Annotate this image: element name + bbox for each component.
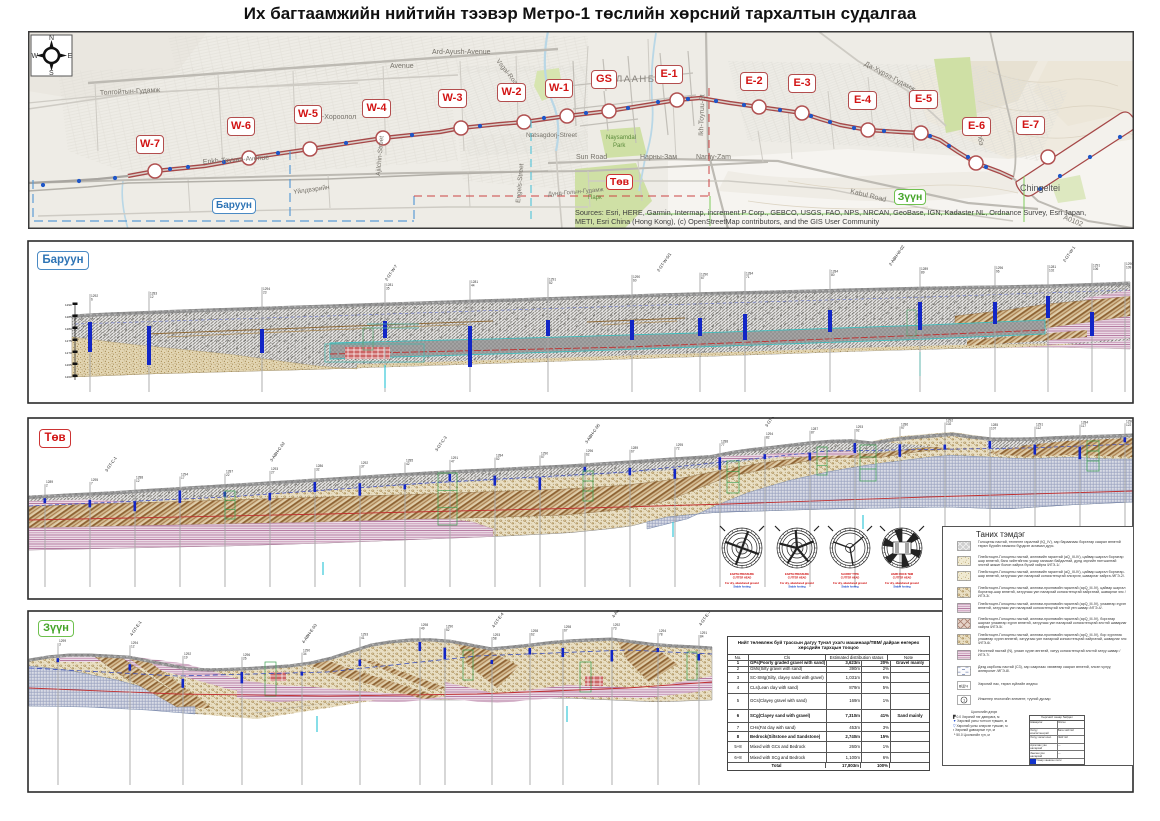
svg-text:122: 122 — [1126, 423, 1132, 427]
svg-text:Ikh-Toyruu-St: Ikh-Toyruu-St — [698, 94, 706, 136]
svg-text:35: 35 — [386, 287, 390, 291]
svg-text:E: E — [68, 53, 73, 60]
svg-text:Stable footing: Stable footing — [893, 585, 911, 589]
svg-text:96: 96 — [996, 269, 1000, 273]
svg-text:58: 58 — [493, 637, 497, 641]
svg-text:112: 112 — [1036, 426, 1041, 430]
svg-text:52: 52 — [549, 281, 553, 285]
svg-text:26: 26 — [243, 656, 247, 660]
svg-text:87: 87 — [811, 430, 815, 434]
svg-text:2: 2 — [46, 484, 48, 488]
svg-text:41: 41 — [361, 636, 365, 640]
svg-text:1280: 1280 — [65, 327, 72, 331]
svg-text:Парк: Парк — [588, 195, 602, 201]
svg-text:82: 82 — [766, 436, 770, 440]
svg-text:84: 84 — [700, 635, 704, 639]
svg-text:Chingeltei: Chingeltei — [1020, 183, 1060, 193]
svg-text:67: 67 — [701, 276, 705, 280]
svg-text:7: 7 — [91, 481, 93, 485]
svg-text:3: 3 — [59, 643, 61, 647]
svg-text:Park: Park — [613, 143, 626, 149]
svg-text:109: 109 — [1126, 266, 1132, 270]
svg-text:1260: 1260 — [65, 375, 72, 379]
svg-text:Naysamdal: Naysamdal — [606, 135, 636, 141]
svg-text:2-ABH-W-02: 2-ABH-W-02 — [888, 244, 906, 267]
svg-text:For dry, abandoned ground: For dry, abandoned ground — [885, 581, 919, 585]
svg-text:2-GT-W-1: 2-GT-W-1 — [1062, 245, 1077, 263]
svg-text:62: 62 — [586, 452, 590, 456]
svg-text:37: 37 — [361, 465, 365, 469]
svg-text:3-GT-C-3: 3-GT-C-3 — [434, 434, 448, 452]
svg-text:SLURRY TYPE: SLURRY TYPE — [841, 572, 859, 576]
svg-text:4-GT-E-7: 4-GT-E-7 — [698, 610, 712, 627]
svg-text:19: 19 — [184, 655, 188, 659]
svg-text:62: 62 — [531, 633, 535, 637]
svg-text:1290: 1290 — [65, 303, 72, 307]
svg-text:67: 67 — [564, 629, 568, 633]
svg-text:2-GT-W-5/1: 2-GT-W-5/1 — [656, 251, 673, 272]
svg-text:CUTTER HEAD: CUTTER HEAD — [841, 576, 860, 580]
svg-text:57: 57 — [541, 455, 545, 459]
svg-text:For dry, abandoned ground: For dry, abandoned ground — [780, 581, 814, 585]
svg-text:For dry, abandoned ground: For dry, abandoned ground — [833, 581, 867, 585]
svg-text:3-ABH-C-02: 3-ABH-C-02 — [269, 440, 287, 462]
svg-text:6: 6 — [91, 297, 93, 301]
svg-text:102: 102 — [1049, 268, 1055, 272]
svg-text:72: 72 — [676, 446, 680, 450]
svg-text:73: 73 — [613, 627, 617, 631]
svg-text:4-GT-E-4: 4-GT-E-4 — [491, 611, 505, 629]
svg-text:12: 12 — [150, 295, 154, 299]
svg-text:Stable footing: Stable footing — [841, 585, 859, 589]
svg-text:92: 92 — [856, 428, 860, 432]
svg-text:78: 78 — [659, 633, 663, 637]
svg-text:52: 52 — [446, 628, 450, 632]
svg-text:CUTTER HEAD: CUTTER HEAD — [893, 576, 912, 580]
svg-text:107: 107 — [991, 427, 997, 431]
svg-text:W: W — [32, 53, 39, 60]
svg-text:22: 22 — [226, 473, 230, 477]
svg-text:Stable footing: Stable footing — [733, 585, 751, 589]
svg-text:Avenue: Avenue — [390, 63, 414, 70]
svg-text:Sun Road: Sun Road — [576, 154, 607, 161]
svg-text:р-Хороолол: р-Хороолол — [318, 114, 356, 121]
svg-text:12: 12 — [136, 479, 140, 483]
svg-text:102: 102 — [946, 422, 952, 426]
svg-text:34: 34 — [303, 652, 307, 656]
svg-text:1285: 1285 — [65, 315, 72, 319]
svg-text:3-GT-C-1: 3-GT-C-1 — [104, 455, 118, 473]
svg-text:EARTH PRESSURE: EARTH PRESSURE — [785, 572, 809, 576]
svg-text:Ard-Ayush-Avenue: Ard-Ayush-Avenue — [432, 49, 491, 56]
svg-text:32: 32 — [316, 468, 320, 472]
svg-text:For dry, abandoned ground: For dry, abandoned ground — [725, 581, 759, 585]
svg-text:80: 80 — [831, 273, 835, 277]
svg-text:49: 49 — [421, 627, 425, 631]
svg-text:Narny-Zam: Narny-Zam — [696, 154, 731, 161]
svg-text:3-ABH-C-05: 3-ABH-C-05 — [584, 422, 602, 444]
svg-text:Natsagdorj-Street: Natsagdorj-Street — [526, 132, 577, 139]
svg-text:44: 44 — [471, 284, 475, 288]
svg-text:4-GT-E-1: 4-GT-E-1 — [129, 619, 143, 637]
svg-text:Нарны-Зам: Нарны-Зам — [640, 154, 677, 161]
svg-text:CUTTER HEAD: CUTTER HEAD — [733, 576, 752, 580]
svg-text:97: 97 — [901, 426, 905, 430]
svg-text:1275: 1275 — [65, 339, 72, 343]
svg-text:HARD ROCK TBM: HARD ROCK TBM — [891, 572, 913, 576]
svg-text:89: 89 — [921, 271, 925, 275]
svg-text:1265: 1265 — [65, 363, 72, 367]
svg-text:52: 52 — [496, 457, 500, 461]
svg-text:47: 47 — [451, 459, 455, 463]
svg-text:12: 12 — [131, 645, 135, 649]
svg-text:Stable footing: Stable footing — [788, 585, 806, 589]
svg-text:17: 17 — [181, 476, 185, 480]
svg-text:METI, Esri China (Hong Kong),: METI, Esri China (Hong Kong), (c) OpenSt… — [575, 217, 880, 226]
svg-text:S: S — [49, 70, 54, 77]
svg-text:60: 60 — [633, 278, 637, 282]
svg-text:23: 23 — [263, 291, 267, 295]
svg-text:Sources: Esri, HERE, Garmin, I: Sources: Esri, HERE, Garmin, Intermap, i… — [575, 208, 1086, 217]
svg-text:1270: 1270 — [65, 351, 72, 355]
svg-text:77: 77 — [721, 443, 725, 447]
svg-text:71: 71 — [746, 275, 750, 279]
svg-text:2-GT-W-7: 2-GT-W-7 — [384, 263, 399, 281]
svg-text:27: 27 — [271, 470, 275, 474]
svg-text:CUTTER HEAD: CUTTER HEAD — [788, 576, 807, 580]
svg-text:67: 67 — [631, 449, 635, 453]
svg-text:117: 117 — [1081, 424, 1086, 428]
svg-text:106: 106 — [1093, 267, 1099, 271]
svg-text:EARTH PRESSURE: EARTH PRESSURE — [730, 572, 754, 576]
svg-text:4-ABH-E-03: 4-ABH-E-03 — [301, 622, 318, 644]
svg-text:42: 42 — [406, 462, 410, 466]
svg-text:вШч: вШч — [959, 683, 969, 688]
svg-text:N: N — [49, 35, 54, 42]
